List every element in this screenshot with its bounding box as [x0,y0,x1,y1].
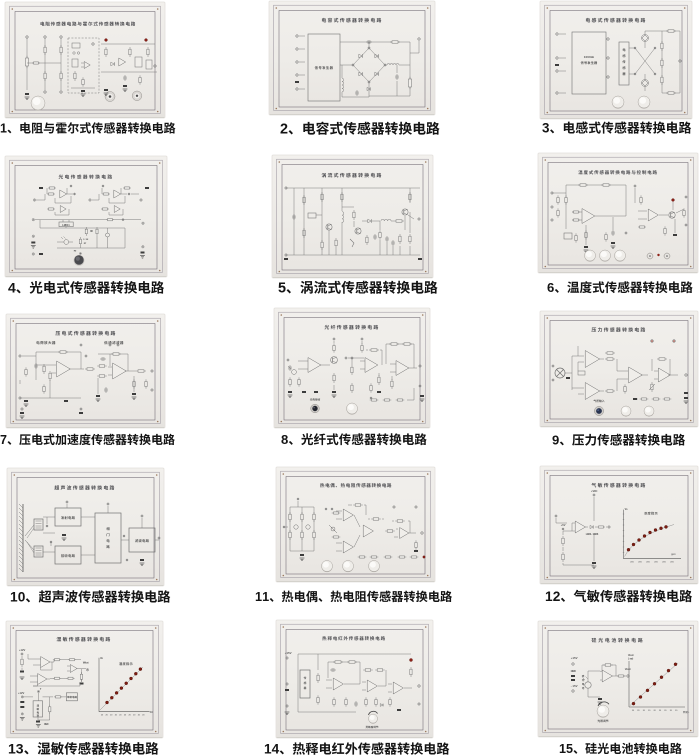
svg-text:9: 9 [552,433,559,448]
svg-text:1: 1 [0,122,7,136]
svg-text:t: t [88,661,89,665]
svg-text:t: t [633,653,634,657]
svg-text:3: 3 [542,121,549,136]
svg-text:V: V [24,648,26,652]
svg-text:2: 2 [280,122,288,138]
svg-text:V: V [576,684,578,688]
svg-text:4: 4 [272,742,280,756]
svg-text:V: V [576,656,578,660]
svg-text:t: t [630,667,631,671]
svg-text:V: V [23,691,25,695]
svg-text:D: D [47,723,49,726]
svg-text:0: 0 [18,590,26,605]
svg-text:3: 3 [16,741,24,756]
svg-text:D: D [574,669,576,673]
svg-text:V: V [564,523,566,527]
svg-text:4: 4 [8,280,16,296]
svg-text:V: V [290,651,292,655]
svg-text:2: 2 [553,589,561,604]
svg-text:7: 7 [0,433,7,447]
svg-text:8: 8 [281,432,288,447]
svg-text:6: 6 [547,280,554,295]
svg-text:1: 1 [262,590,269,604]
svg-text:1: 1 [8,741,16,756]
svg-text:1: 1 [559,742,566,756]
svg-text:1: 1 [255,590,262,604]
svg-text:5: 5 [566,742,573,756]
svg-text:C: C [596,489,598,493]
svg-text:5: 5 [278,281,286,297]
svg-text:m: m [674,554,676,556]
